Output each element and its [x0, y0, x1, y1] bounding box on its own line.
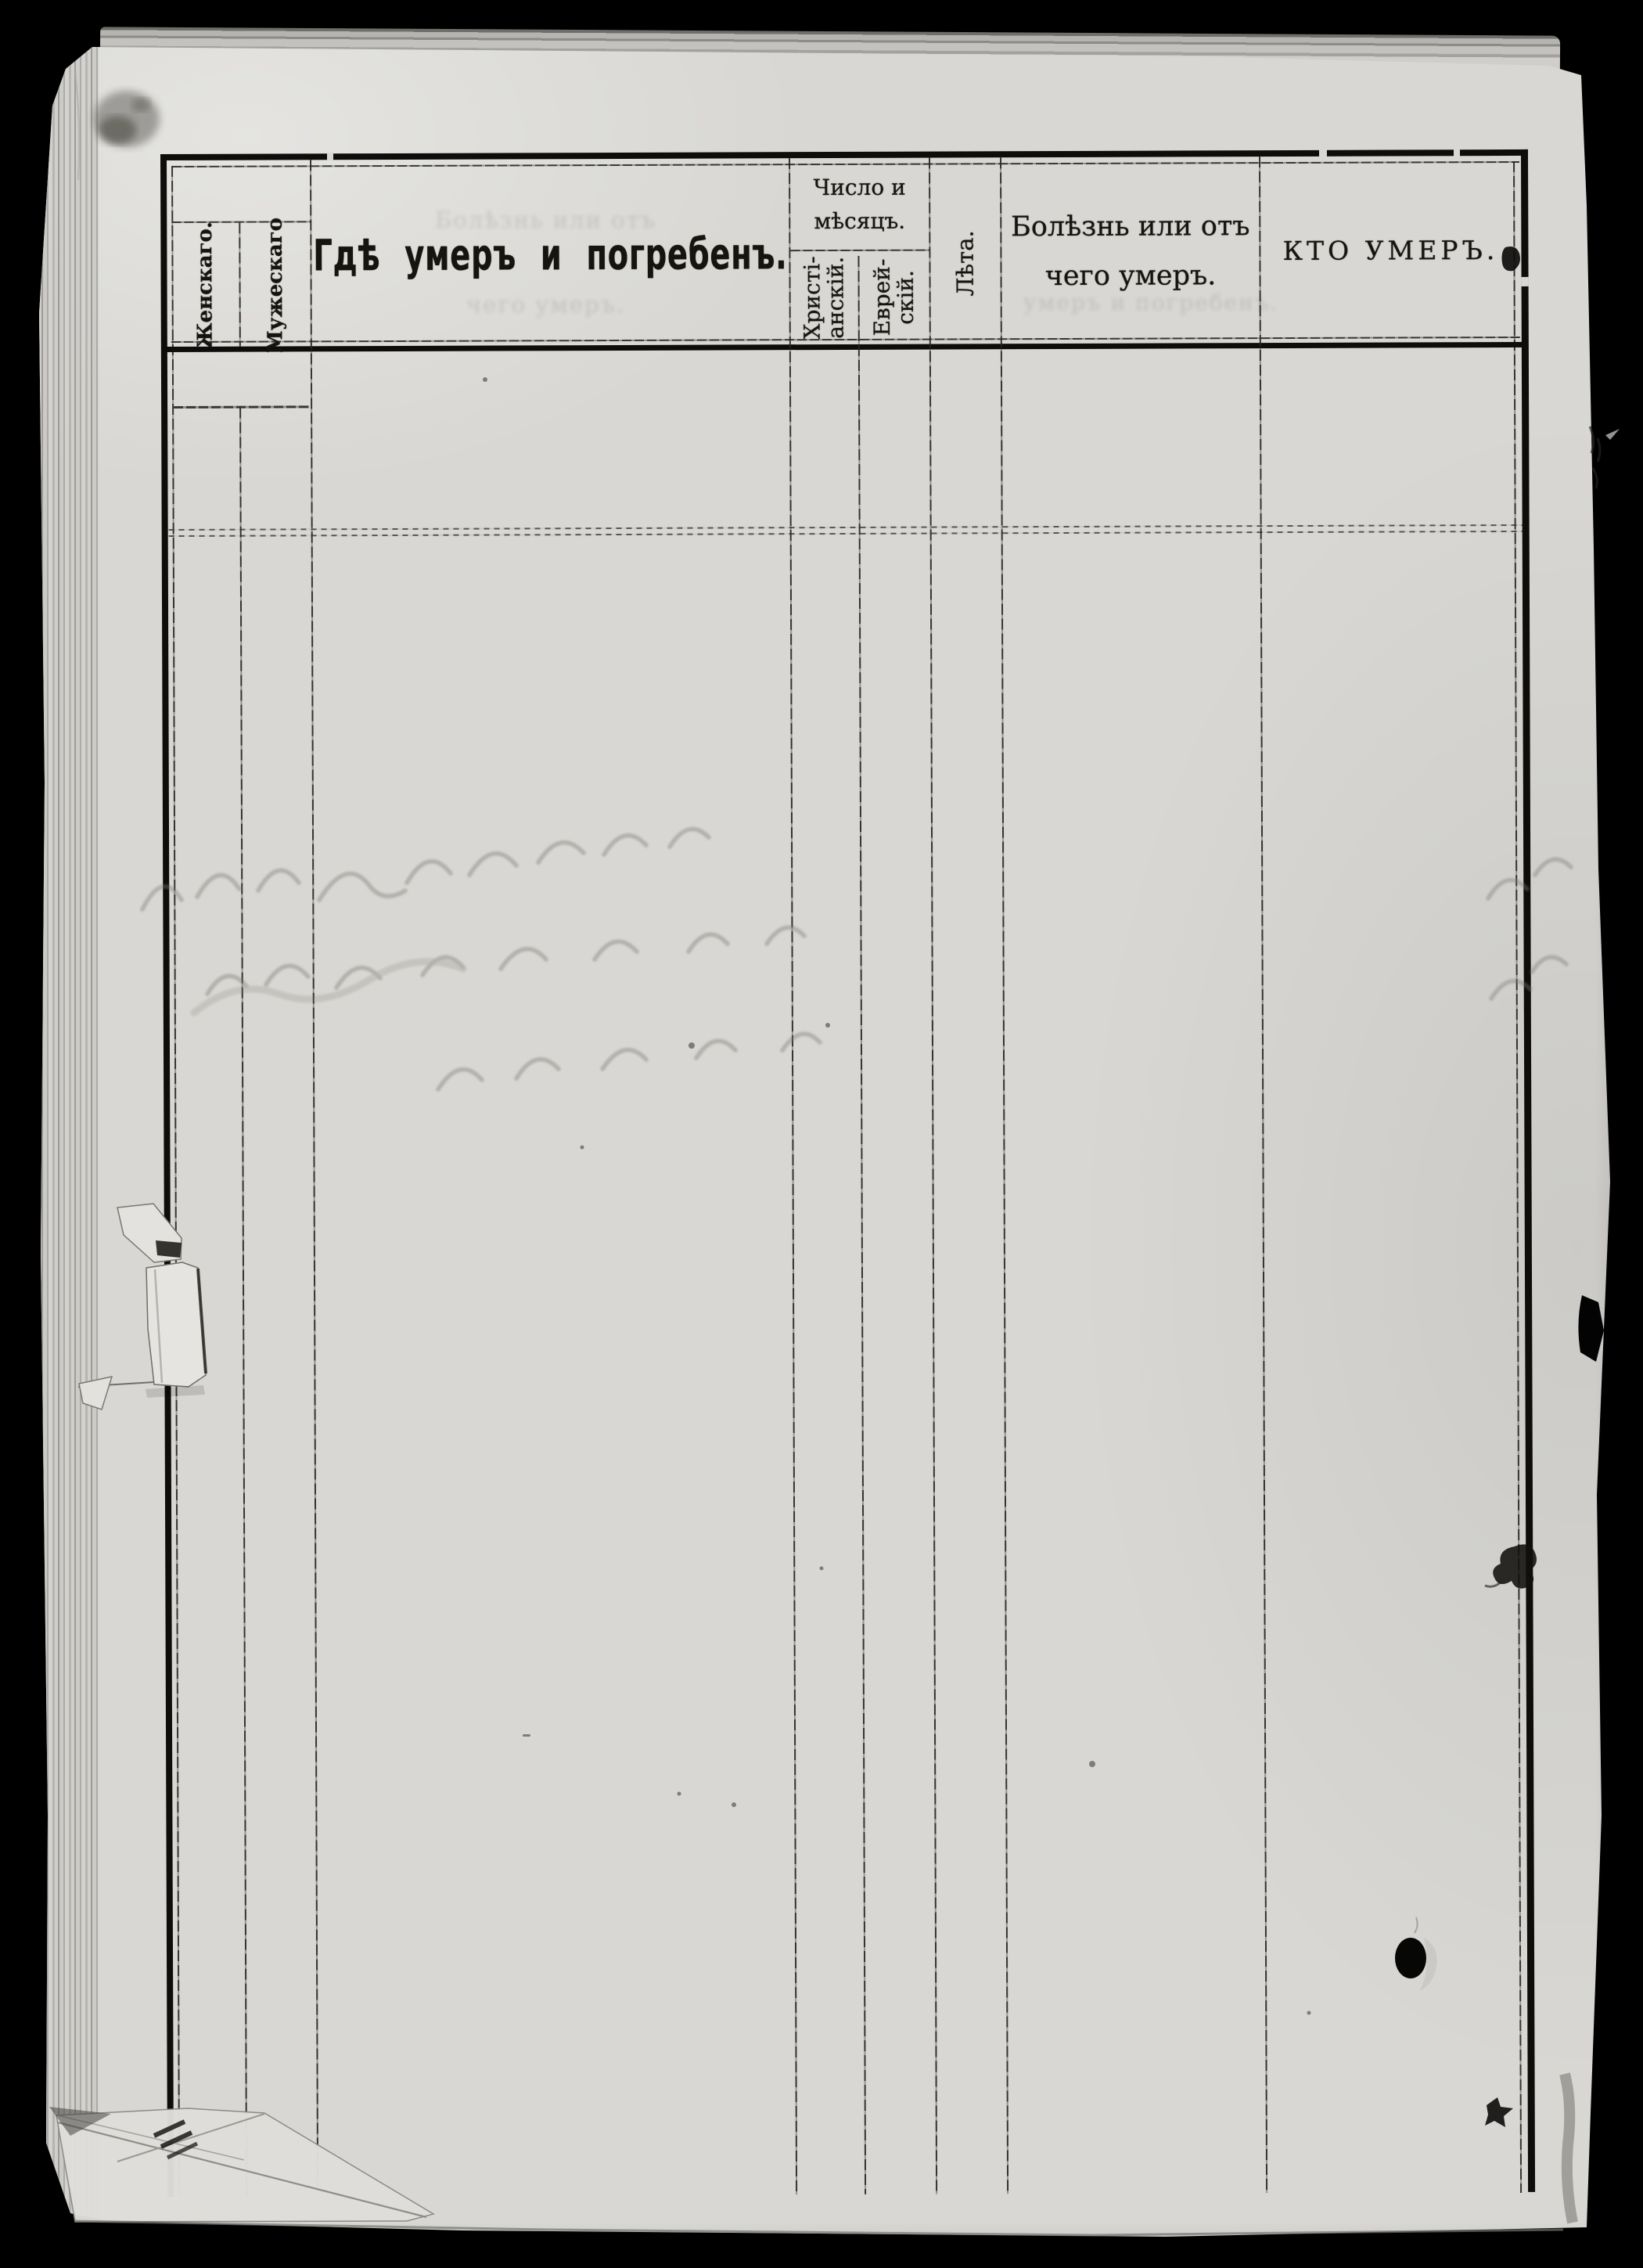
header-cell-female: Женскаго.	[171, 225, 240, 347]
inner-frame-right	[1513, 161, 1522, 2193]
header-cell-christian-date: Христі- анскій.	[789, 251, 858, 344]
header-label-cause-line2: чего умеръ.	[1011, 251, 1250, 301]
header-label-male: Мужескаго	[264, 218, 288, 353]
header-label-cause: Болѣзнь или отъ чего умеръ.	[1011, 202, 1250, 301]
header-label-where-died: Гдѣ умеръ и погребенъ.	[313, 229, 787, 280]
column-divider-age-cause	[1000, 157, 1008, 2194]
header-label-jewish: Еврей- скій.	[871, 258, 919, 336]
sex-columns-top-rule	[171, 221, 311, 223]
header-cell-age: Лѣта.	[929, 185, 1001, 341]
header-label-cause-line1: Болѣзнь или отъ	[1011, 202, 1250, 252]
header-cell-where-died: Гдѣ умеръ и погребенъ.	[311, 164, 790, 345]
header-label-date-line2: мѣсяцъ.	[814, 204, 906, 239]
header-label-jewish-line1: Еврей-	[871, 258, 895, 336]
header-label-female: Женскаго.	[193, 221, 218, 350]
header-label-age: Лѣта.	[952, 230, 979, 296]
column-divider-where-date	[789, 158, 797, 2194]
scan-background: Болѣзнь или отъ чего умеръ. умеръ и погр…	[0, 0, 1643, 2267]
header-cell-who-died: КТО УМЕРЪ.	[1260, 191, 1522, 309]
border-scan-gap	[1454, 149, 1460, 157]
border-scan-gap	[1319, 149, 1327, 157]
row-separator-dotted	[169, 524, 1523, 531]
column-divider-christian-jewish	[857, 256, 866, 2194]
register-table: Женскаго. Мужескаго Гдѣ умеръ и погребен…	[0, 0, 1643, 2268]
header-cell-male: Мужескаго	[239, 224, 311, 346]
column-divider-female-male	[239, 408, 247, 2197]
row-separator-short	[174, 405, 309, 409]
column-divider-cause-who	[1259, 157, 1267, 2193]
header-cell-jewish-date: Еврей- скій.	[858, 251, 929, 344]
border-scan-gap	[327, 153, 333, 160]
header-cell-cause-of-death: Болѣзнь или отъ чего умеръ.	[1001, 175, 1260, 329]
header-label-date-line1: Число и	[813, 170, 905, 204]
border-scan-gap	[1522, 277, 1529, 286]
register-page: Болѣзнь или отъ чего умеръ. умеръ и погр…	[0, 0, 1643, 2267]
column-divider-date-age	[929, 158, 937, 2194]
header-label-christian: Христі- анскій.	[800, 256, 848, 339]
header-label-christian-line2: анскій.	[824, 256, 848, 339]
header-label-christian-line1: Христі-	[800, 256, 825, 339]
header-cell-date-group: Число и мѣсяцъ.	[789, 162, 929, 247]
header-label-jewish-line2: скій.	[894, 258, 919, 336]
header-label-who-died: КТО УМЕРЪ.	[1282, 235, 1498, 266]
row-separator-dotted	[169, 531, 1523, 537]
header-label-date-group: Число и мѣсяцъ.	[813, 170, 906, 238]
column-divider-male-where	[310, 160, 318, 2196]
table-border-right	[1521, 149, 1535, 2192]
